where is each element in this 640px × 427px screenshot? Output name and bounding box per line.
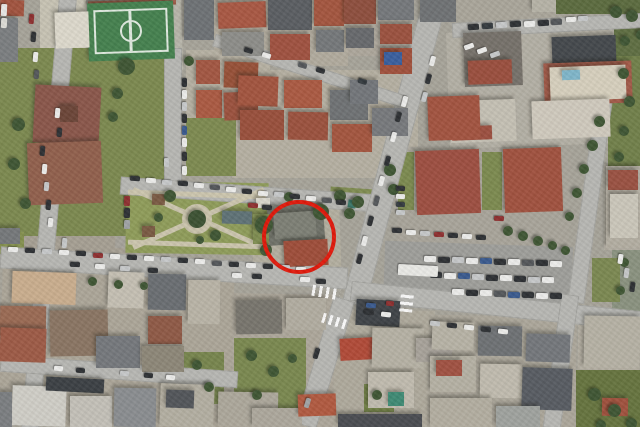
parked-car: [462, 234, 472, 239]
tree: [624, 96, 635, 107]
tree: [288, 354, 297, 363]
crosswalk: [399, 293, 414, 312]
tree: [619, 126, 629, 136]
parked-car: [396, 210, 405, 215]
building-roof: [196, 90, 222, 118]
tree: [565, 212, 574, 221]
parked-car: [124, 208, 130, 218]
parked-car: [566, 17, 576, 23]
green-area: [592, 258, 620, 302]
tree: [188, 210, 206, 228]
parked-car: [542, 277, 554, 283]
parked-car: [124, 196, 130, 206]
parked-car: [110, 254, 120, 260]
building-roof: [584, 316, 640, 369]
building-roof: [332, 124, 372, 152]
parked-car: [62, 238, 68, 248]
parked-car: [1, 4, 8, 16]
building-roof: [344, 0, 376, 24]
parked-car: [40, 146, 46, 156]
parked-car: [229, 262, 239, 268]
building-roof: [415, 149, 481, 215]
parked-car: [536, 260, 548, 266]
parked-car: [70, 262, 80, 268]
building-roof: [70, 396, 112, 427]
parked-car: [424, 256, 436, 262]
tree: [503, 226, 513, 236]
parked-car: [148, 268, 158, 274]
building-roof: [142, 346, 184, 372]
parked-car: [178, 258, 188, 264]
tree: [154, 213, 163, 222]
parked-car: [430, 320, 440, 326]
tree: [196, 236, 204, 244]
building-roof: [339, 337, 374, 361]
parked-car: [182, 114, 187, 123]
tree: [352, 196, 364, 208]
sports-court-marking: [120, 20, 142, 42]
parked-car: [194, 183, 204, 189]
building-roof: [166, 390, 195, 409]
building-roof: [252, 408, 302, 427]
tree: [8, 158, 20, 170]
building-roof: [236, 300, 283, 335]
parked-car: [76, 368, 85, 374]
parked-car: [522, 292, 534, 298]
parked-car: [31, 32, 37, 42]
parked-car: [274, 192, 284, 198]
building-roof: [0, 327, 47, 363]
building-roof: [496, 406, 540, 427]
parked-car: [146, 178, 156, 184]
tree: [184, 56, 194, 66]
tree: [608, 404, 621, 417]
building-roof: [218, 1, 267, 29]
parked-car: [322, 198, 332, 204]
parked-car: [420, 231, 430, 236]
parked-car: [166, 375, 175, 381]
parked-car: [458, 273, 470, 279]
parked-car: [242, 189, 252, 195]
parked-car: [210, 185, 220, 191]
building-roof: [148, 274, 187, 311]
parked-car: [464, 324, 474, 330]
parked-car: [406, 230, 416, 235]
parked-car: [232, 273, 242, 279]
green-area: [482, 152, 502, 210]
parked-car: [466, 290, 478, 296]
tree: [626, 418, 637, 427]
building-roof: [288, 112, 328, 141]
tree: [192, 360, 202, 370]
parked-car: [494, 216, 504, 221]
building-roof: [222, 32, 264, 56]
building-roof: [0, 228, 20, 244]
building-roof: [610, 194, 638, 238]
parked-car: [508, 259, 520, 265]
building-roof: [314, 0, 344, 26]
parked-car: [366, 303, 376, 309]
building-roof: [378, 0, 414, 20]
building-roof: [0, 392, 12, 427]
parked-car: [42, 164, 48, 174]
tree: [548, 241, 557, 250]
building-roof: [420, 0, 456, 22]
parked-car: [508, 292, 520, 298]
parked-car: [182, 126, 187, 135]
tree: [579, 164, 589, 174]
parked-car: [144, 373, 153, 379]
tree: [596, 420, 606, 427]
parked-car: [182, 152, 187, 161]
parked-car: [76, 251, 86, 257]
parked-car: [452, 257, 464, 263]
parked-car: [381, 311, 391, 317]
parked-car: [364, 309, 374, 315]
tree: [118, 58, 135, 75]
parked-car: [300, 277, 310, 283]
parked-car: [1, 18, 8, 28]
parked-car: [182, 90, 187, 99]
tree: [610, 6, 622, 18]
parked-car: [550, 261, 562, 267]
parked-car: [438, 257, 450, 263]
building-roof: [526, 333, 571, 363]
parked-car: [263, 264, 273, 270]
parked-car: [500, 275, 512, 281]
tree: [594, 116, 605, 127]
parked-car: [33, 52, 39, 62]
parked-car: [124, 220, 130, 229]
parked-car: [25, 248, 35, 254]
parked-car: [57, 128, 63, 137]
parked-car: [8, 247, 18, 253]
parked-car: [54, 366, 63, 372]
parked-car: [452, 289, 464, 295]
parked-car: [182, 138, 187, 147]
tree: [572, 188, 582, 198]
building-roof: [284, 80, 322, 108]
parked-car: [396, 202, 405, 207]
parked-car: [48, 218, 54, 227]
parked-car: [522, 260, 534, 266]
building-roof: [188, 280, 221, 325]
parked-car: [120, 266, 130, 272]
building-roof: [96, 336, 140, 368]
building-roof: [372, 108, 408, 136]
parked-car: [195, 259, 205, 265]
building-roof: [46, 376, 105, 393]
building-roof: [184, 0, 214, 40]
building-roof: [388, 392, 404, 406]
tree: [246, 350, 257, 361]
tree: [344, 208, 355, 219]
parked-car: [434, 232, 444, 237]
parked-car: [550, 293, 562, 299]
building-roof: [384, 52, 402, 65]
tree: [614, 152, 624, 162]
parked-car: [510, 21, 521, 28]
parked-car: [182, 102, 187, 111]
tree: [252, 390, 262, 400]
satellite-map[interactable]: [0, 0, 640, 427]
parked-car: [396, 186, 405, 191]
parked-car: [514, 276, 526, 282]
parked-car: [466, 258, 478, 264]
parked-car: [578, 16, 588, 22]
parked-car: [258, 191, 268, 197]
tree: [561, 246, 570, 255]
parked-car: [448, 233, 458, 238]
building-roof: [240, 110, 284, 140]
building-roof: [380, 24, 412, 44]
parked-car: [386, 301, 394, 307]
parked-car: [536, 293, 548, 299]
parked-car: [392, 228, 402, 233]
red-highlight-circle-annotation: [262, 200, 336, 274]
building-roof: [222, 210, 252, 224]
parked-car: [252, 274, 262, 280]
parked-car: [476, 235, 486, 240]
building-roof: [427, 95, 481, 141]
tree: [20, 198, 31, 209]
tree: [140, 282, 148, 290]
building-roof: [521, 367, 572, 411]
parked-car: [248, 203, 258, 209]
parked-car: [262, 205, 272, 211]
parked-car: [444, 273, 456, 279]
building-roof: [114, 388, 157, 427]
building-roof: [237, 75, 278, 106]
parked-car: [396, 194, 405, 199]
parked-car: [481, 326, 491, 332]
parked-car: [55, 108, 61, 118]
parked-car: [398, 264, 439, 277]
parked-car: [59, 250, 69, 256]
tree: [204, 382, 214, 392]
tree: [533, 236, 543, 246]
tree: [112, 88, 123, 99]
tree: [618, 68, 629, 79]
building-roof: [270, 34, 310, 60]
parked-car: [46, 200, 52, 210]
parked-car: [496, 22, 507, 29]
parked-car: [290, 194, 300, 200]
parked-car: [494, 291, 506, 297]
parked-car: [127, 255, 137, 261]
tree: [620, 36, 630, 46]
tree: [12, 118, 25, 131]
parked-car: [336, 200, 346, 206]
parked-car: [178, 181, 188, 187]
tree: [268, 366, 279, 377]
parked-car: [93, 253, 103, 259]
building-roof: [316, 30, 344, 52]
parked-car: [538, 20, 549, 27]
parked-car: [480, 290, 492, 296]
parked-car: [162, 180, 172, 186]
parked-car: [212, 261, 222, 267]
parked-car: [472, 274, 484, 280]
tree: [114, 280, 123, 289]
tree: [587, 140, 598, 151]
parked-car: [480, 258, 492, 264]
tree: [210, 230, 221, 241]
tree: [518, 231, 528, 241]
parked-car: [164, 158, 169, 167]
tree: [626, 10, 638, 22]
road: [164, 48, 182, 192]
building-roof: [338, 414, 422, 427]
building-roof: [532, 0, 556, 12]
parked-car: [551, 19, 562, 26]
tree: [372, 390, 382, 400]
parked-car: [494, 259, 506, 265]
building-roof: [468, 59, 513, 85]
parked-car: [246, 263, 256, 269]
building-roof: [562, 70, 580, 81]
building-roof: [286, 298, 326, 330]
building-roof: [346, 28, 374, 48]
parked-car: [34, 70, 40, 79]
parked-car: [182, 78, 187, 87]
parked-car: [482, 23, 493, 30]
tree: [88, 277, 97, 286]
building-roof: [430, 398, 492, 427]
parked-car: [528, 277, 540, 283]
parked-car: [182, 166, 187, 175]
green-area: [186, 118, 236, 176]
building-roof: [268, 0, 312, 30]
parked-car: [161, 257, 171, 263]
building-roof: [60, 106, 78, 122]
building-roof: [503, 147, 563, 213]
building-roof: [480, 364, 523, 399]
parked-car: [44, 182, 50, 191]
parked-car: [486, 275, 498, 281]
building-roof: [11, 271, 76, 305]
building-roof: [11, 385, 66, 427]
parked-car: [447, 322, 457, 328]
parked-car: [144, 256, 154, 262]
building-roof: [148, 316, 182, 344]
parked-car: [95, 264, 105, 270]
parked-car: [130, 176, 140, 182]
tree: [588, 388, 601, 401]
tree: [616, 286, 625, 295]
building-roof: [608, 170, 638, 190]
tree: [636, 30, 640, 40]
building-roof: [27, 141, 103, 206]
parked-car: [120, 371, 129, 377]
building-roof: [54, 11, 89, 48]
parked-car: [425, 74, 432, 85]
building-roof: [142, 226, 155, 237]
building-roof: [196, 60, 220, 84]
parked-car: [498, 328, 508, 334]
parked-car: [226, 187, 236, 193]
building-roof: [107, 271, 144, 308]
parked-car: [468, 24, 479, 31]
parked-car: [429, 56, 436, 67]
parked-car: [524, 21, 535, 28]
parked-car: [42, 249, 52, 255]
parked-car: [29, 14, 35, 24]
building-roof: [436, 360, 462, 376]
tree: [108, 112, 118, 122]
tree: [164, 190, 176, 202]
parked-car: [316, 279, 326, 285]
